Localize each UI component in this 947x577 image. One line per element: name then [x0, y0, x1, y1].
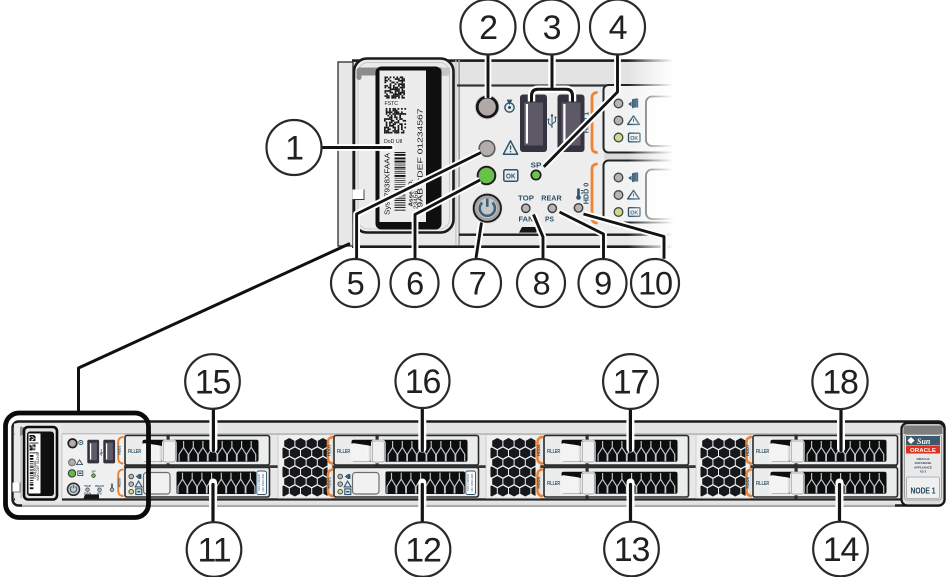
svg-text:8: 8 — [533, 266, 550, 302]
svg-text:HDD6: HDD6 — [745, 476, 750, 488]
svg-text:13: 13 — [614, 531, 650, 569]
svg-text:ORACLE: ORACLE — [910, 448, 937, 454]
svg-text:16: 16 — [405, 363, 441, 401]
svg-text:FILLER: FILLER — [756, 449, 769, 455]
svg-text:5: 5 — [347, 266, 364, 302]
svg-text:15: 15 — [195, 364, 231, 402]
svg-text:Sys: 7938XFAAA: Sys: 7938XFAAA — [383, 152, 392, 215]
svg-text:7: 7 — [469, 266, 486, 302]
svg-text:SAS 2 300GB: SAS 2 300GB — [466, 474, 470, 491]
svg-text:Sun: Sun — [917, 437, 931, 446]
svg-text:PS: PS — [545, 214, 554, 223]
svg-text:TOP: TOP — [518, 193, 534, 202]
svg-text:HDD4: HDD4 — [536, 444, 541, 456]
svg-text:OK: OK — [506, 174, 516, 181]
svg-text:HDD 0: HDD 0 — [582, 183, 591, 205]
svg-text:10: 10 — [638, 266, 672, 302]
svg-text:SAS 2 300GB: SAS 2 300GB — [257, 474, 261, 491]
svg-text:9: 9 — [594, 266, 611, 302]
svg-text:FSTC: FSTC — [385, 101, 399, 107]
svg-text:9AB CDEF 01234567: 9AB CDEF 01234567 — [416, 109, 425, 208]
svg-text:X3-2: X3-2 — [920, 470, 927, 474]
svg-text:DoD UII: DoD UII — [384, 139, 402, 145]
svg-text:FILLER: FILLER — [337, 449, 350, 455]
svg-text:11: 11 — [198, 532, 231, 570]
svg-text:HDD0: HDD0 — [117, 478, 121, 487]
svg-text:HDD7: HDD7 — [745, 444, 750, 456]
svg-text:FILLER: FILLER — [547, 449, 560, 455]
svg-text:SP: SP — [91, 469, 95, 473]
svg-text:1: 1 — [285, 130, 303, 168]
svg-text:2: 2 — [479, 9, 497, 47]
svg-text:REAR: REAR — [95, 484, 104, 488]
svg-text:10K RPM HDD: 10K RPM HDD — [470, 474, 474, 492]
svg-text:TOP: TOP — [84, 484, 91, 488]
svg-text:NODE 1: NODE 1 — [911, 487, 936, 496]
svg-text:REAR: REAR — [541, 193, 562, 202]
svg-text:14: 14 — [823, 531, 859, 569]
svg-text:17: 17 — [613, 364, 649, 402]
svg-text:HDD2: HDD2 — [117, 446, 121, 455]
svg-text:FILLER: FILLER — [756, 481, 769, 487]
svg-text:HDD3: HDD3 — [327, 444, 332, 456]
svg-text:6: 6 — [406, 266, 423, 302]
svg-text:3: 3 — [543, 9, 561, 47]
svg-text:10K RPM HDD: 10K RPM HDD — [261, 474, 265, 492]
svg-text:HDD1: HDD1 — [327, 476, 332, 488]
svg-text:FILLER: FILLER — [128, 449, 141, 455]
svg-text:12: 12 — [405, 532, 441, 570]
svg-text:18: 18 — [822, 364, 858, 402]
svg-text:FILLER: FILLER — [547, 481, 560, 487]
svg-text:9AB CDEF 012345: 9AB CDEF 012345 — [36, 453, 40, 480]
svg-text:SP: SP — [531, 161, 542, 170]
svg-text:4: 4 — [609, 9, 627, 47]
svg-text:HDD5: HDD5 — [536, 476, 541, 488]
